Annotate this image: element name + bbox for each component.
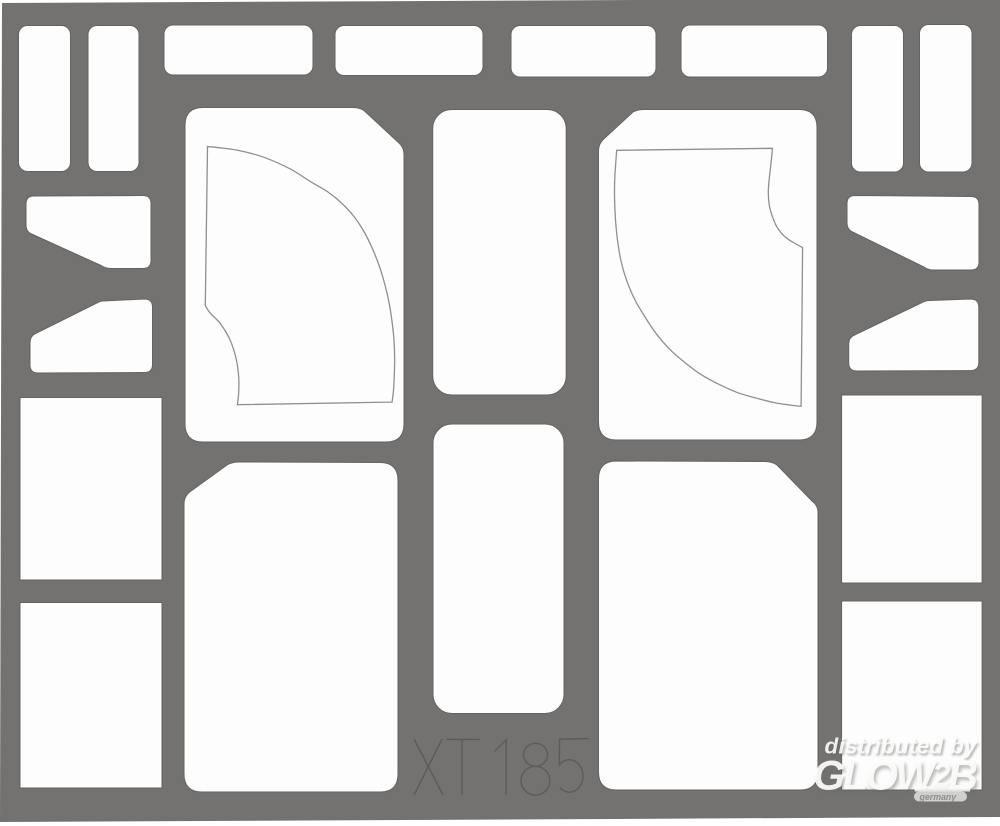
svg-text:germany: germany bbox=[919, 792, 958, 802]
